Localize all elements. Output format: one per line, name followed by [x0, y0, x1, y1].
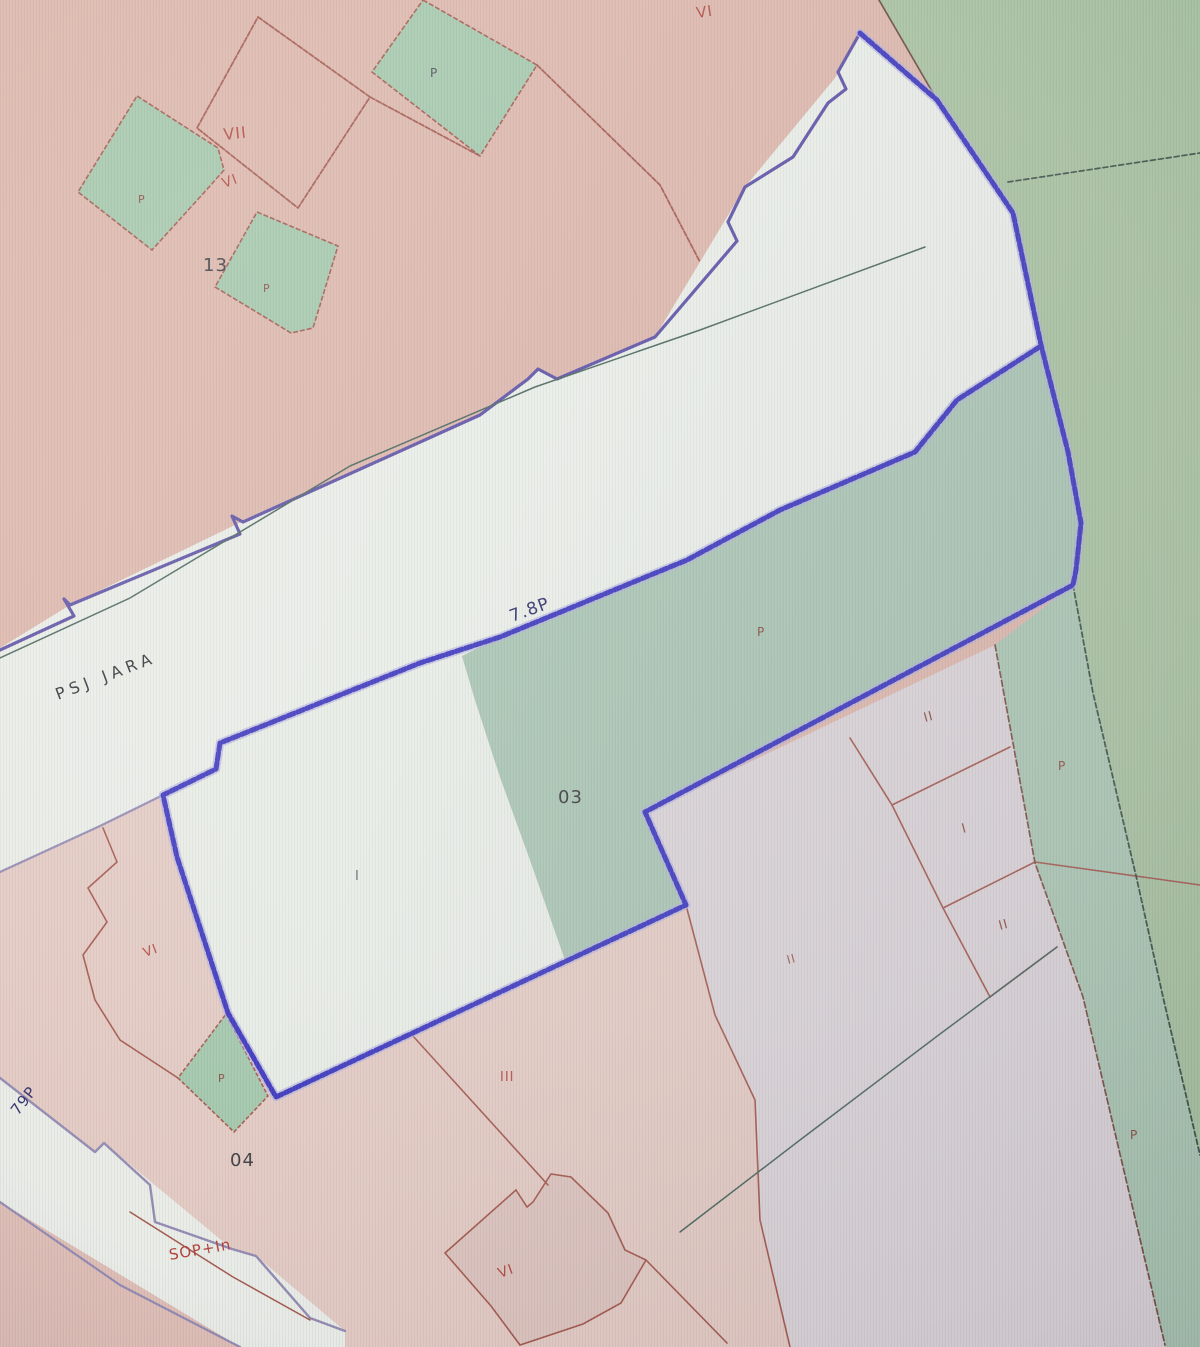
label-p-bottom-diamond: P [218, 1072, 226, 1085]
label-p-green-band: P [757, 625, 765, 639]
label-p-top-parcel: P [430, 66, 438, 80]
label-p-strip-lower: P [1130, 1128, 1138, 1142]
label-p-13-parcel: P [263, 282, 271, 295]
label-04: 04 [230, 1150, 255, 1171]
label-13: 13 [203, 255, 228, 276]
label-p-strip-upper: P [1058, 759, 1066, 773]
label-i-parcel-white: I [355, 869, 360, 884]
label-vi-top-field: VI [695, 2, 714, 22]
cadastral-map-screenshot: VIPVIIVIP13PPSJ JARA7.8PP03IIPIIIIVIIIII… [0, 0, 1200, 1347]
label-03: 03 [558, 787, 583, 808]
label-iii: III [500, 1070, 515, 1085]
label-vii: VII [222, 123, 247, 144]
label-p-west-parcel: P [138, 193, 146, 206]
cadastral-map[interactable]: VIPVIIVIP13PPSJ JARA7.8PP03IIPIIIIVIIIII… [0, 0, 1200, 1347]
